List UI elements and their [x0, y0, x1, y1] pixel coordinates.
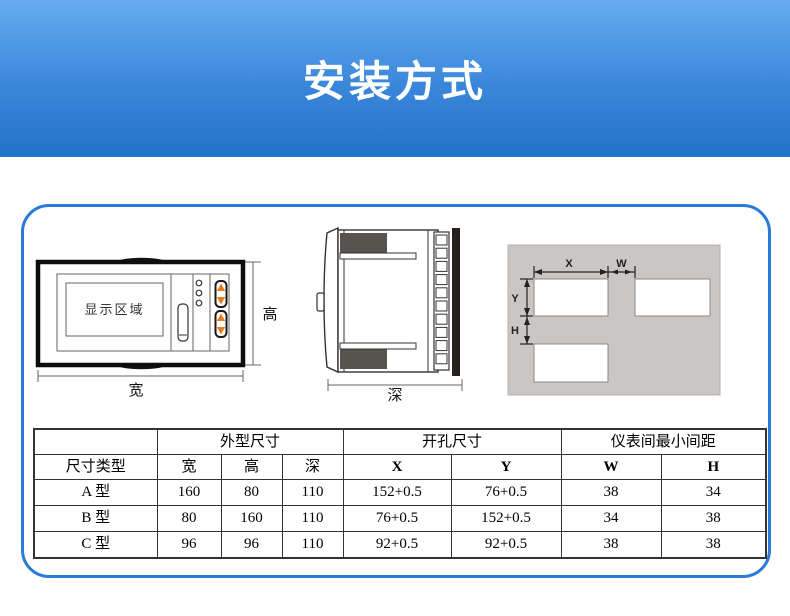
table-row-type-c: C 型 96 96 110 92+0.5 92+0.5 38 38 — [34, 532, 766, 559]
table-cell: 38 — [661, 532, 766, 559]
page-title: 安装方式 — [303, 48, 487, 109]
small-button-icon — [196, 290, 202, 296]
display-area-label: 显示区域 — [84, 302, 144, 317]
table-cell: 34 — [561, 506, 661, 532]
clip-rail-top — [340, 253, 416, 259]
column-header: 宽 — [157, 455, 221, 480]
column-header: 高 — [221, 455, 282, 480]
side-bezel-profile — [324, 228, 338, 372]
cutout-top-right — [635, 279, 710, 316]
mounting-clip-top — [340, 233, 387, 253]
table-cell: 110 — [282, 480, 343, 506]
table-cell: A 型 — [34, 480, 157, 506]
column-header: X — [343, 455, 451, 480]
section-banner: 安装方式 — [0, 0, 790, 157]
mounting-clip-bottom — [340, 349, 387, 369]
width-dimension — [38, 370, 243, 382]
table-cell: 160 — [221, 506, 282, 532]
column-header: H — [661, 455, 766, 480]
front-view-diagram: 显示区域 高 宽 — [30, 253, 282, 403]
table-cell: 92+0.5 — [343, 532, 451, 559]
width-dimension-label: 宽 — [128, 382, 143, 399]
side-view-diagram: 深 — [310, 220, 475, 405]
table-row-type-b: B 型 80 160 110 76+0.5 152+0.5 34 38 — [34, 506, 766, 532]
column-header: 尺寸类型 — [34, 455, 157, 480]
h-dimension-label: H — [511, 325, 519, 337]
table-group-header-row: 外型尺寸 开孔尺寸 仪表间最小间距 — [34, 429, 766, 455]
table-cell: 38 — [661, 506, 766, 532]
dimensions-table: 外型尺寸 开孔尺寸 仪表间最小间距 尺寸类型 宽 高 深 X Y W H A 型… — [33, 428, 767, 559]
group-header-cutout-size: 开孔尺寸 — [343, 429, 561, 455]
table-cell: 152+0.5 — [343, 480, 451, 506]
table-cell: C 型 — [34, 532, 157, 559]
clip-rail-bottom — [340, 343, 416, 349]
terminal-block — [434, 228, 460, 376]
updown-button-top — [216, 281, 227, 307]
column-header: 深 — [282, 455, 343, 480]
height-dimension-label: 高 — [262, 306, 277, 323]
panel-cutout-diagram: X W Y H — [505, 240, 725, 400]
depth-dimension-label: 深 — [387, 387, 402, 404]
terminal-cover-bar — [452, 228, 460, 376]
y-dimension-label: Y — [511, 293, 519, 305]
updown-button-bottom — [216, 311, 227, 337]
column-header: W — [561, 455, 661, 480]
table-cell: 34 — [661, 480, 766, 506]
x-dimension-label: X — [565, 258, 573, 270]
small-button-icon — [196, 300, 202, 306]
cutout-bottom-left — [534, 344, 608, 382]
table-cell: 76+0.5 — [343, 506, 451, 532]
installation-panel: 显示区域 高 宽 — [21, 204, 771, 578]
group-header-outline-size: 外型尺寸 — [157, 429, 343, 455]
table-cell: 96 — [157, 532, 221, 559]
table-cell: 110 — [282, 532, 343, 559]
group-header-min-spacing: 仪表间最小间距 — [561, 429, 766, 455]
w-dimension-label: W — [616, 258, 627, 270]
table-cell: 160 — [157, 480, 221, 506]
table-cell: 110 — [282, 506, 343, 532]
small-button-icon — [196, 280, 202, 286]
table-cell: 92+0.5 — [451, 532, 561, 559]
table-cell: B 型 — [34, 506, 157, 532]
table-cell: 152+0.5 — [451, 506, 561, 532]
table-row-type-a: A 型 160 80 110 152+0.5 76+0.5 38 34 — [34, 480, 766, 506]
table-cell: 80 — [221, 480, 282, 506]
column-header: Y — [451, 455, 561, 480]
table-cell: 38 — [561, 480, 661, 506]
table-header-row: 尺寸类型 宽 高 深 X Y W H — [34, 455, 766, 480]
table-cell: 96 — [221, 532, 282, 559]
bezel-latch — [317, 293, 324, 311]
table-corner-cell — [34, 429, 157, 455]
table-cell: 80 — [157, 506, 221, 532]
cutout-top-left — [534, 279, 608, 316]
table-cell: 38 — [561, 532, 661, 559]
table-cell: 76+0.5 — [451, 480, 561, 506]
height-dimension — [245, 262, 261, 365]
